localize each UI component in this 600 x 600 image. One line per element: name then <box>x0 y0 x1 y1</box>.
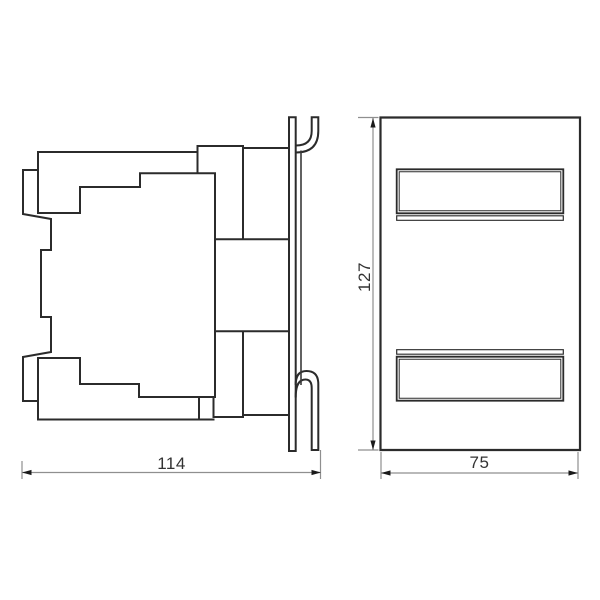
dim-114-label: 114 <box>157 454 186 473</box>
din-rail-mount <box>289 117 318 451</box>
arrow-114-right <box>312 470 322 475</box>
front-view-slot-bottom-inner <box>399 359 561 398</box>
front-view-slot-top <box>397 169 564 213</box>
arrow-75-left <box>381 470 391 475</box>
din-rail-bottom-hook <box>296 371 319 450</box>
side-view-outline <box>23 146 289 420</box>
front-view <box>381 118 581 451</box>
front-view-slot-top-inner <box>399 172 561 211</box>
arrow-114-left <box>22 470 32 475</box>
arrow-127-top <box>370 118 375 128</box>
drawing-canvas: 114 127 75 <box>0 0 600 600</box>
din-rail-top-hook <box>296 117 318 152</box>
front-view-slot-bottom <box>397 357 564 401</box>
dim-75-label: 75 <box>470 453 490 472</box>
arrow-75-right <box>569 470 579 475</box>
dimension-labels: 114 127 75 <box>157 262 489 473</box>
din-rail-plate <box>289 117 296 451</box>
technical-drawing: 114 127 75 <box>0 0 600 600</box>
dim-127-label: 127 <box>355 262 374 292</box>
front-view-strip-top <box>397 216 564 221</box>
arrow-127-bottom <box>370 441 375 451</box>
side-view-body <box>23 146 289 420</box>
front-view-strip-bottom <box>397 350 564 355</box>
